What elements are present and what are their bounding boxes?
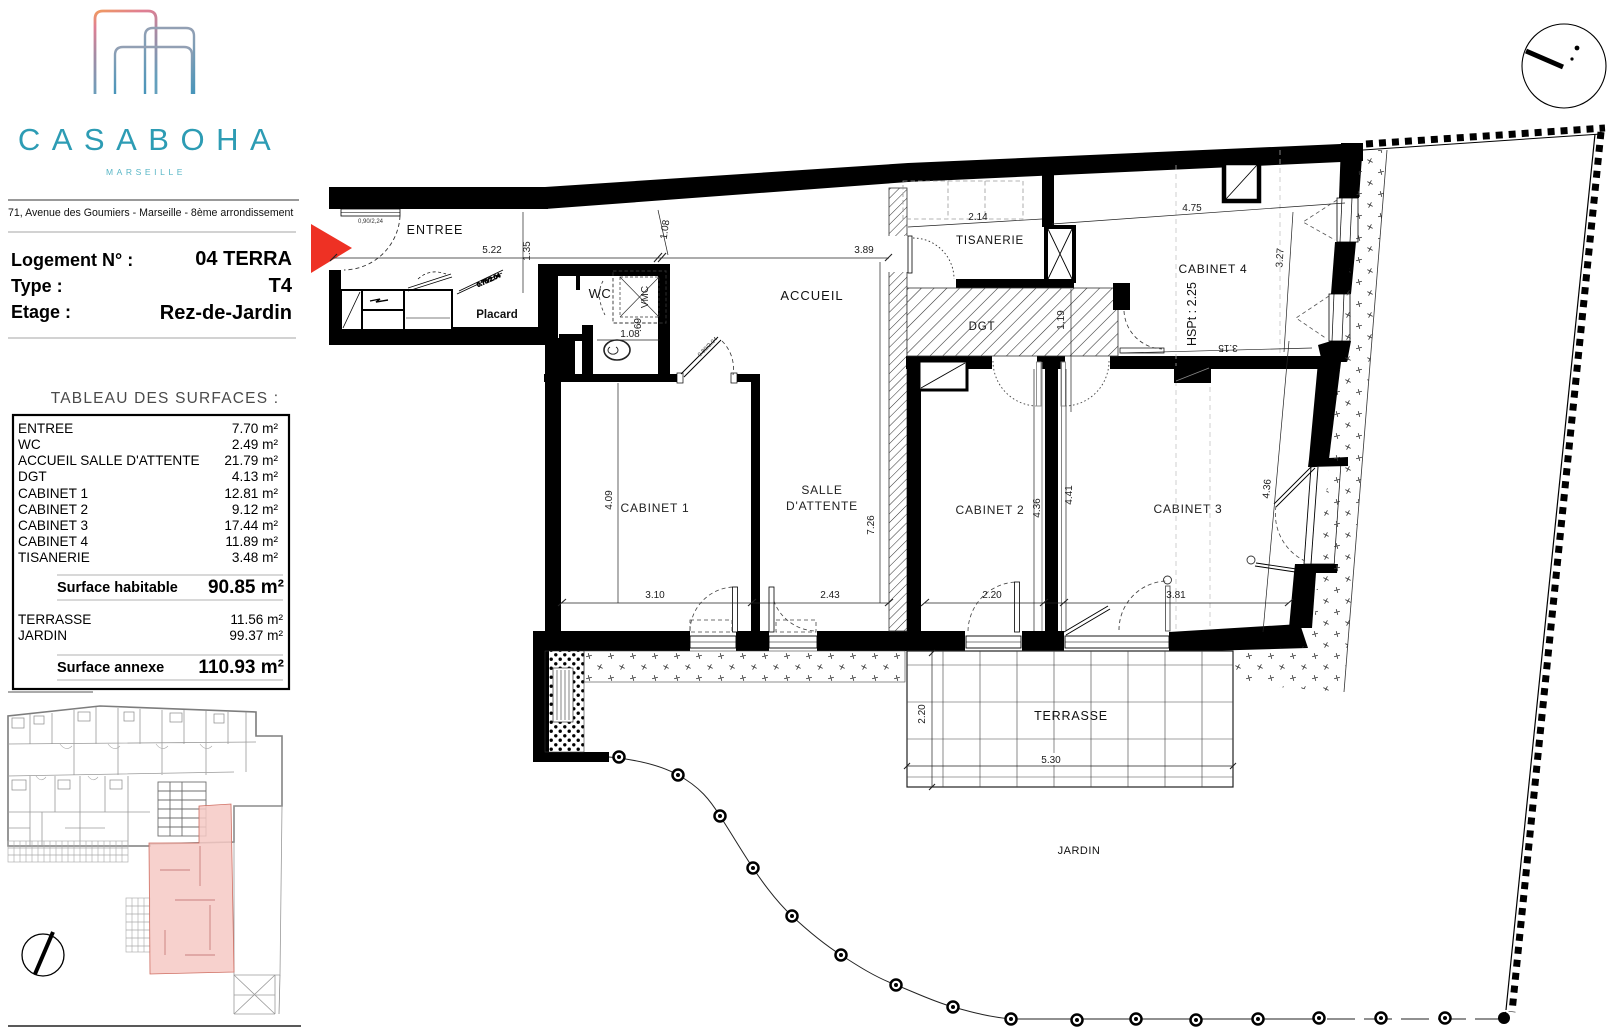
svg-text:11.56 m²: 11.56 m² [230,612,283,627]
svg-text:90.85 m²: 90.85 m² [208,577,284,598]
svg-text:4.36: 4.36 [1261,478,1274,499]
svg-text:JARDIN: JARDIN [18,628,67,643]
svg-text:5.30: 5.30 [1041,755,1061,766]
svg-text:MARSEILLE: MARSEILLE [106,167,186,177]
svg-text:TERRASSE: TERRASSE [18,612,91,627]
svg-text:3.10: 3.10 [645,590,665,601]
svg-text:2.49 m²: 2.49 m² [232,437,279,452]
svg-text:CASABOHA: CASABOHA [18,122,282,157]
svg-text:ENTREE: ENTREE [407,223,464,237]
svg-text:2.20: 2.20 [917,704,928,724]
svg-text:4.36: 4.36 [1032,498,1043,518]
svg-text:110.93 m²: 110.93 m² [198,657,284,678]
svg-text:4.13 m²: 4.13 m² [232,469,279,484]
svg-text:Etage :: Etage : [11,302,71,322]
svg-text:.69: .69 [633,318,644,332]
svg-text:0,90/2,24: 0,90/2,24 [358,219,384,225]
svg-text:WC: WC [18,437,41,452]
svg-text:VMC: VMC [640,286,651,308]
svg-text:CABINET 2: CABINET 2 [956,503,1025,517]
svg-text:CABINET 1: CABINET 1 [18,486,88,501]
svg-text:2.14: 2.14 [968,212,988,223]
svg-text:3.15: 3.15 [1218,342,1238,353]
svg-text:CABINET 3: CABINET 3 [18,518,88,533]
svg-text:1,19: 1,19 [1056,310,1067,330]
svg-text:TABLEAU DES SURFACES :: TABLEAU DES SURFACES : [51,390,280,407]
svg-text:7.26: 7.26 [866,515,877,535]
svg-text:3.81: 3.81 [1166,590,1186,601]
svg-text:99.37 m²: 99.37 m² [229,628,283,643]
svg-text:21.79 m²: 21.79 m² [224,453,278,468]
svg-text:1.35: 1.35 [522,241,533,261]
svg-text:SALLE: SALLE [801,483,842,497]
svg-text:TISANERIE: TISANERIE [956,235,1024,247]
svg-text:Rez-de-Jardin: Rez-de-Jardin [160,302,292,324]
svg-text:Placard: Placard [476,309,518,321]
svg-text:2.20: 2.20 [982,590,1002,601]
svg-text:CABINET 4: CABINET 4 [18,534,88,549]
svg-text:Surface annexe: Surface annexe [57,660,164,676]
svg-text:4.09: 4.09 [604,490,615,510]
svg-text:CABINET 1: CABINET 1 [621,501,690,515]
svg-text:T4: T4 [269,275,293,297]
svg-text:2.43: 2.43 [820,590,840,601]
svg-text:TERRASSE: TERRASSE [1034,709,1108,723]
svg-text:04 TERRA: 04 TERRA [195,248,292,270]
svg-text:ENTREE: ENTREE [18,421,73,436]
svg-text:JARDIN: JARDIN [1058,845,1101,857]
svg-text:17.44 m²: 17.44 m² [224,518,278,533]
svg-text:CABINET 2: CABINET 2 [18,502,88,517]
svg-text:4.41: 4.41 [1064,485,1075,505]
svg-text:HSPt : 2.25: HSPt : 2.25 [1185,282,1199,346]
svg-text:3.27: 3.27 [1274,247,1286,268]
svg-text:3.89: 3.89 [854,245,874,256]
svg-text:ACCUEIL SALLE D'ATTENTE: ACCUEIL SALLE D'ATTENTE [18,453,200,468]
svg-text:7.70 m²: 7.70 m² [232,421,279,436]
svg-text:Surface habitable: Surface habitable [57,580,178,596]
svg-text:12.81 m²: 12.81 m² [224,486,278,501]
svg-text:9.12 m²: 9.12 m² [232,502,279,517]
svg-text:ACCUEIL: ACCUEIL [780,288,843,303]
svg-text:Type :: Type : [11,276,63,296]
svg-text:5.22: 5.22 [482,245,502,256]
svg-text:Logement N° :: Logement N° : [11,250,133,270]
svg-text:DGT: DGT [18,469,47,484]
svg-text:4.75: 4.75 [1182,203,1202,214]
svg-text:TISANERIE: TISANERIE [18,550,90,565]
svg-text:D'ATTENTE: D'ATTENTE [786,499,858,513]
svg-text:CABINET 3: CABINET 3 [1154,502,1223,516]
svg-text:CABINET 4: CABINET 4 [1179,262,1248,276]
svg-text:3.48 m²: 3.48 m² [232,550,279,565]
svg-text:DGT: DGT [969,321,996,333]
svg-text:71, Avenue des Goumiers - Mars: 71, Avenue des Goumiers - Marseille - 8è… [8,207,293,219]
svg-text:11.89 m²: 11.89 m² [225,534,278,549]
